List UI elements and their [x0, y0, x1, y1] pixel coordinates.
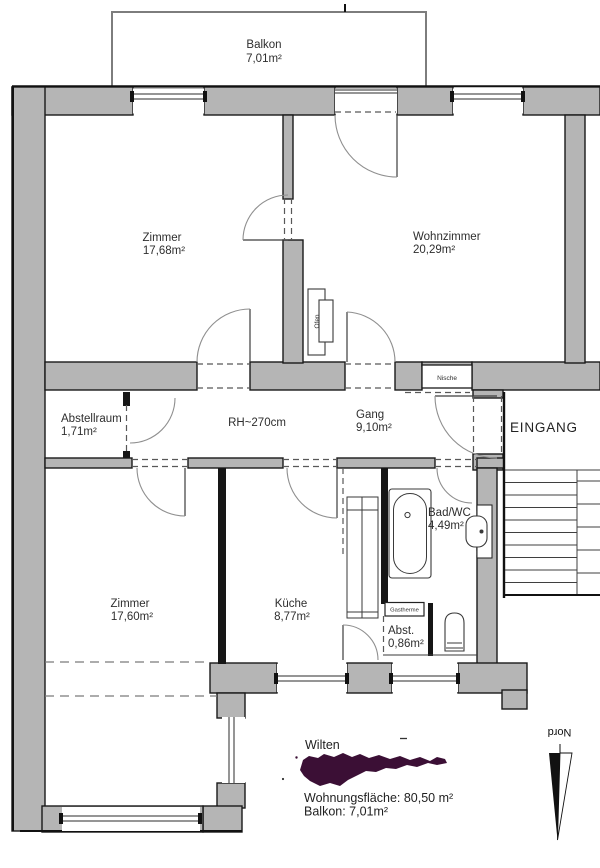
room-area-zimmer1: 17,68m²: [143, 245, 185, 257]
wall-segment: [12, 87, 45, 831]
wall-segment: [337, 458, 435, 468]
footer-block: Wilten Wohnungsfläche: 80,50 m² Balkon: …: [282, 738, 453, 819]
label-entrance: EINGANG: [510, 420, 578, 435]
wall-segment: [347, 663, 392, 693]
wall-segment: [283, 115, 293, 199]
room-label-zimmer1: Zimmer: [143, 232, 182, 244]
window: [133, 89, 204, 114]
window: [62, 807, 200, 831]
stair-treads: [577, 481, 600, 573]
wall-storage: [123, 392, 130, 406]
living-area-text: Wohnungsfläche: 80,50 m²: [304, 791, 453, 805]
balcony-door-swing: [335, 115, 397, 177]
wall-segment: [204, 87, 335, 115]
door-swing: [343, 625, 378, 660]
wilten-district-silhouette: [300, 753, 447, 786]
entrance-door-swing: [435, 396, 497, 458]
balcony-area-text: Balkon: 7,01m²: [304, 805, 388, 819]
wall-segment: [250, 362, 345, 390]
room-area-abst: 0,86m²: [388, 638, 424, 650]
north-arrow-light-half: [558, 753, 573, 840]
wall-segment: [502, 690, 527, 709]
fixtures: [308, 289, 492, 655]
room-area-balkon: 7,01m²: [246, 53, 282, 65]
room-label-abstellraum: Abstellraum: [61, 413, 122, 425]
stray-dot: [295, 756, 297, 758]
door-swing: [347, 312, 395, 362]
balcony-door-opening: [335, 89, 397, 114]
toilet: [445, 613, 464, 651]
floor-plan-canvas: Balkon 7,01m² Zimmer 17,68m² Wohnzimmer …: [0, 0, 600, 868]
floor-plan: Balkon 7,01m² Zimmer 17,68m² Wohnzimmer …: [0, 0, 600, 868]
door-swing: [197, 309, 250, 362]
wall-abst-right: [428, 603, 433, 656]
wall-segment: [458, 663, 527, 693]
door-swing: [137, 468, 185, 516]
storage-door-swing: [130, 398, 175, 443]
wall-segment: [477, 468, 497, 664]
wall-segment: [188, 458, 283, 468]
wall-segment: [523, 87, 600, 115]
stove-inner: [319, 300, 333, 342]
wall-segment: [472, 362, 600, 390]
wall-segment: [217, 693, 245, 718]
wall-segment: [45, 362, 197, 390]
north-label: Nord: [548, 726, 572, 738]
wall-segment: [217, 783, 245, 808]
door-swing: [287, 468, 337, 518]
wall-segment: [473, 390, 503, 398]
room-area-gang: 9,10m²: [356, 422, 392, 434]
wall-bath-left: [381, 468, 388, 604]
room-label-gang: Gang: [356, 409, 384, 421]
room-area-bad: 4,49m²: [428, 520, 464, 532]
wall-segment: [565, 115, 585, 363]
room-label-bad: Bad/WC: [428, 507, 471, 519]
room-label-wohnzimmer: Wohnzimmer: [413, 231, 481, 243]
label-stove: Ofen: [314, 314, 321, 328]
room-area-kueche: 8,77m²: [274, 611, 310, 623]
room-label-balkon: Balkon: [246, 39, 281, 51]
washbasin: [466, 516, 487, 547]
wall-segment: [395, 362, 422, 390]
bath-door-swing: [437, 468, 472, 503]
room-label-abst: Abst.: [388, 625, 414, 637]
wall-segment: [210, 663, 277, 693]
wall-kitchen-room: [218, 468, 226, 664]
window: [453, 89, 523, 114]
room-area-abstellraum: 1,71m²: [61, 426, 97, 438]
wall-segment: [477, 458, 504, 468]
room-area-wohnzimmer: 20,29m²: [413, 244, 455, 256]
window: [392, 664, 458, 692]
wall-segment: [397, 87, 453, 115]
window: [277, 664, 347, 692]
staircase: [505, 470, 600, 595]
wall-storage: [123, 451, 130, 458]
door-swing: [243, 195, 288, 240]
label-niche: Nische: [437, 375, 457, 382]
stair-treads: [505, 470, 600, 583]
basin-tap: [480, 530, 484, 534]
room-area-zimmer2: 17,60m²: [111, 611, 153, 623]
label-boiler: Gastherme: [390, 608, 419, 614]
room-label-zimmer2: Zimmer: [111, 598, 150, 610]
north-arrow-icon: Nord: [548, 726, 572, 840]
wall-segment: [203, 806, 242, 832]
stray-dot: [282, 778, 284, 780]
room-label-kueche: Küche: [275, 598, 308, 610]
wall-segment: [283, 240, 303, 363]
wall-segment: [45, 458, 132, 468]
label-room-height: RH~270cm: [228, 417, 286, 429]
district-label: Wilten: [305, 738, 340, 752]
